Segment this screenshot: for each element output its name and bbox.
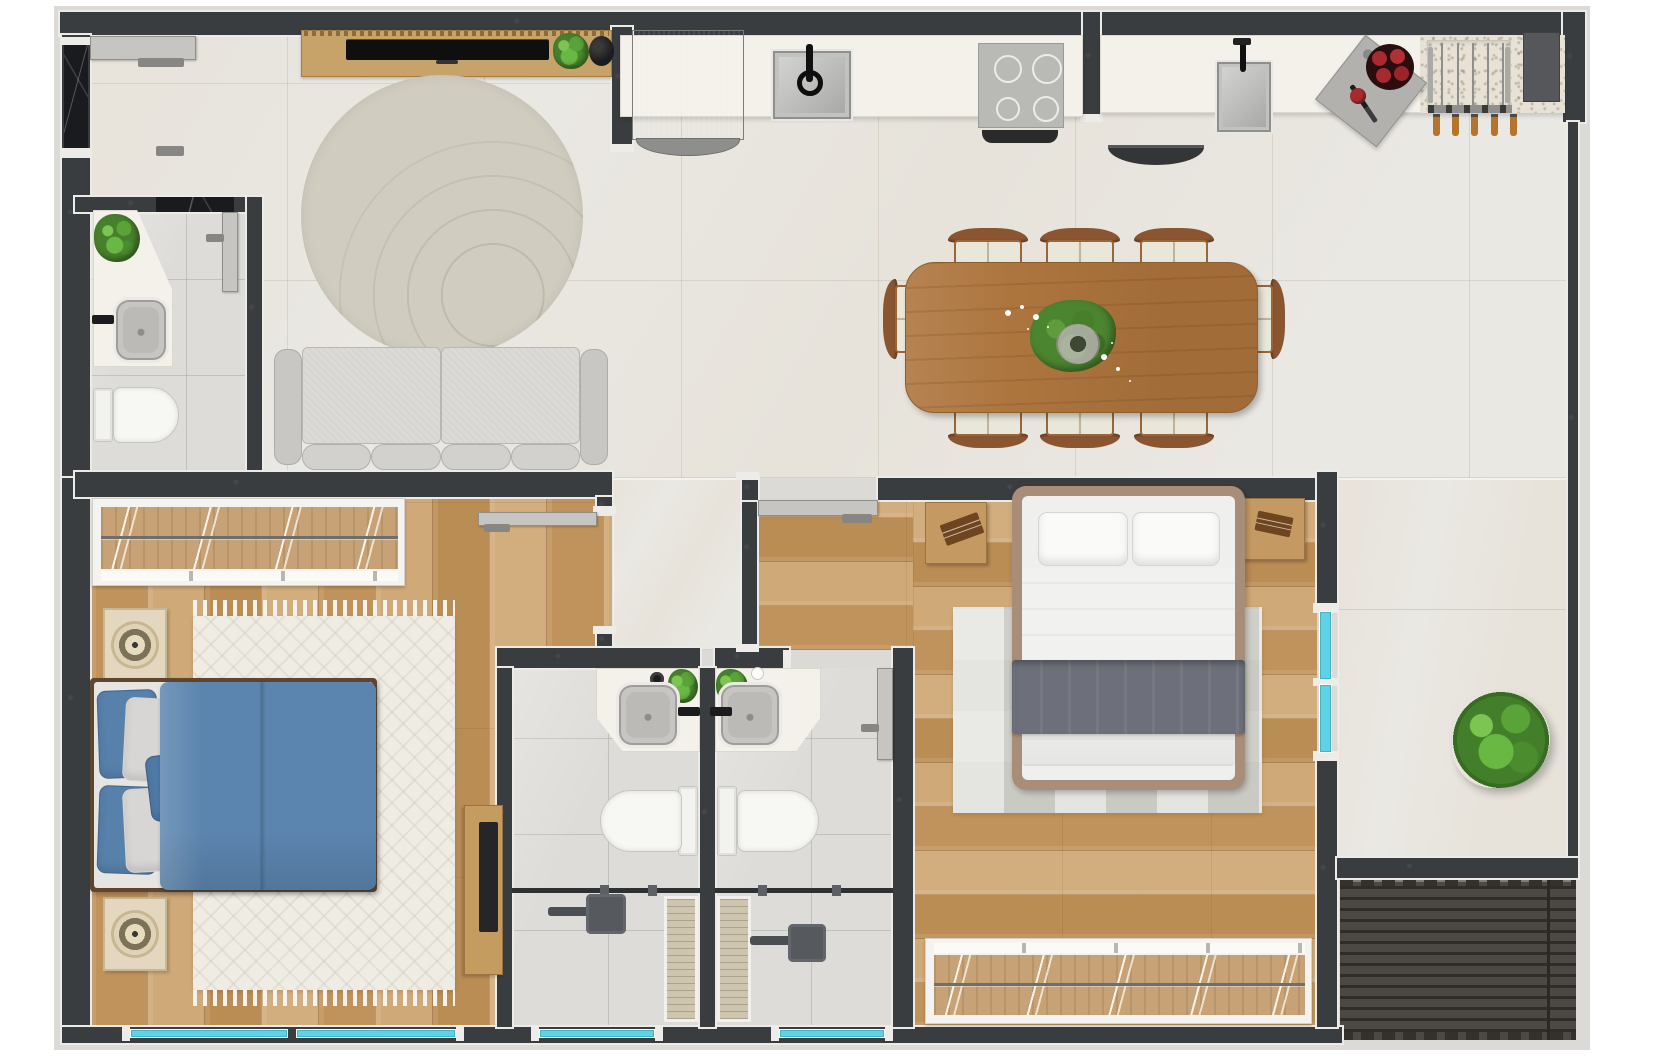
bathroom2-accessory [751, 667, 764, 680]
sofa-seat-cushion [302, 347, 441, 444]
powder-door-handle [206, 234, 224, 242]
powder-sink [113, 297, 169, 363]
terrace-floor [1337, 478, 1570, 860]
utensil-handle [1491, 114, 1498, 136]
master-pillow [1038, 512, 1128, 566]
grill-rod [1441, 43, 1443, 105]
wall-kitchen-pillar [1083, 12, 1100, 120]
wall-terrace-right [1568, 122, 1578, 860]
master-window-pane [1319, 611, 1332, 680]
tomato-bowl [1366, 44, 1414, 90]
console-plant [553, 33, 589, 69]
tomato [1390, 49, 1405, 64]
window-jamb [771, 1027, 779, 1041]
grill-bottom-bar [1428, 105, 1512, 113]
sofa [274, 345, 608, 470]
prep-faucet-base [1233, 38, 1251, 45]
deck-teeth-bottom [1340, 1032, 1576, 1040]
tomato-single [1350, 88, 1366, 104]
bathroom2-door-handle [861, 724, 879, 732]
tomato [1372, 51, 1387, 66]
wall-powder-right [247, 197, 262, 472]
window-jamb [456, 1027, 464, 1041]
rug-tassels [193, 600, 455, 616]
grill-rail [1505, 47, 1510, 103]
sofa-seat-cushion [441, 347, 580, 444]
nightstand-lamp [111, 621, 159, 669]
tv-stand [436, 60, 458, 64]
sofa-armrest [580, 349, 608, 465]
nightstand-lamp [111, 910, 159, 958]
powder-plant [94, 214, 140, 262]
rug-tassels [193, 990, 455, 1006]
utensil-handle [1433, 114, 1440, 136]
master-vestibule-floor [757, 500, 913, 650]
deck-floor [1340, 878, 1576, 1040]
sofa-armrest [274, 349, 302, 465]
bathroom2-shower-head [788, 924, 826, 962]
burner [994, 55, 1022, 83]
sofa-back-cushion [511, 444, 580, 470]
wall-bathroom2-right [893, 648, 913, 1027]
grill-rod [1487, 43, 1489, 105]
wall-master-left [742, 478, 757, 650]
grill-rail [1428, 47, 1433, 103]
window-jamb [122, 1027, 130, 1041]
wardrobe-front-edge [934, 943, 1305, 953]
bathroom1-shower-arm [548, 907, 590, 916]
wall-cap [1080, 114, 1103, 122]
tomato [1376, 68, 1391, 83]
powder-toilet-tank [93, 388, 113, 442]
wall-bedroom1-top [75, 472, 612, 497]
bedroom1-wardrobe [92, 498, 405, 586]
decor-bowl [589, 36, 614, 66]
wall-master-right-lower [1317, 761, 1337, 1027]
grill-rod [1502, 43, 1504, 105]
bedroom1-door-handle [484, 524, 510, 532]
bedroom1-bed [90, 678, 377, 892]
refrigerator [632, 30, 744, 140]
grill-rod [1472, 43, 1474, 105]
bathroom1-shower-head [586, 894, 626, 934]
tomato [1394, 66, 1409, 81]
wall-top [60, 12, 1583, 35]
grill-rod [1457, 43, 1459, 105]
sink-basin [1222, 67, 1266, 127]
wall-bathrooms-shared [700, 668, 715, 1027]
deck-seam [1547, 878, 1550, 1040]
wall-master-right-upper [1317, 472, 1337, 605]
floor-plan-canvas [0, 0, 1665, 1063]
window-jamb [531, 1027, 539, 1041]
cooktop-vent [982, 130, 1058, 143]
kitchen-dark-panel [1523, 32, 1560, 102]
wall-cap [62, 37, 90, 45]
bathroom2-faucet [710, 707, 732, 716]
sofa-back-cushion [302, 444, 371, 470]
prep-faucet [1240, 42, 1246, 72]
bathroom2-linear-drain [717, 896, 751, 1022]
sofa-back-cushion [441, 444, 511, 470]
powder-door-leaf [222, 212, 238, 292]
tv [346, 39, 549, 60]
door-jamb [593, 626, 616, 634]
laptop [479, 822, 498, 932]
wall-bathroom1-top [497, 648, 700, 668]
bathroom1-window-pane [539, 1029, 655, 1038]
bathroom1-toilet-bowl [600, 790, 682, 852]
master-door-handle [842, 514, 872, 523]
powder-toilet-bowl [113, 387, 179, 443]
entry-marble-niche [64, 45, 88, 148]
entry-door-handle [156, 146, 184, 156]
glass-clamp [758, 885, 767, 896]
glass-clamp [832, 885, 841, 896]
entry-door-handle [138, 58, 184, 67]
cooktop [978, 43, 1064, 128]
grill-rack [1427, 40, 1511, 112]
bedroom1-window-pane [130, 1029, 288, 1038]
burner [996, 97, 1020, 121]
duvet-blue [160, 682, 376, 890]
deck-teeth-top [1340, 878, 1576, 886]
master-wardrobe [925, 938, 1312, 1024]
wall-cap [62, 148, 90, 158]
bathroom1-faucet [678, 707, 700, 716]
powder-faucet [92, 315, 114, 324]
kitchen-faucet-ring [797, 70, 823, 96]
master-bed [1012, 486, 1245, 790]
round-rug [301, 75, 583, 357]
wardrobe-front-edge [101, 571, 398, 581]
bathroom2-window-pane [779, 1029, 885, 1038]
wardrobe-rail [101, 536, 398, 539]
utensil-handle [1510, 114, 1517, 136]
hallway-floor [612, 478, 742, 650]
door-jamb [736, 472, 759, 480]
bathroom1-linear-drain [664, 896, 698, 1022]
master-throw-blanket [1012, 660, 1245, 734]
centerpiece-pot [1056, 324, 1100, 364]
burner [1032, 54, 1062, 84]
master-window-pane [1319, 684, 1332, 753]
bedroom1-window-pane [296, 1029, 456, 1038]
window-jamb [655, 1027, 663, 1041]
door-jamb [736, 644, 759, 652]
powder-door-lintel [156, 197, 234, 212]
bathroom1-sink [616, 682, 680, 748]
bathroom2-shower-arm [750, 936, 792, 945]
wall-left-lower [62, 478, 90, 1027]
sofa-back-cushion [371, 444, 441, 470]
bathroom2-toilet-bowl [737, 790, 819, 852]
bathroom2-door-leaf [877, 668, 893, 760]
flower-sprigs [1005, 310, 1011, 316]
wall-terrace-border [1337, 858, 1578, 878]
wall-master-top-left [742, 478, 758, 500]
bathroom2-toilet-tank [717, 786, 737, 856]
master-pillow [1132, 512, 1220, 566]
wall-cap [610, 144, 634, 152]
window-jamb [885, 1027, 893, 1041]
wardrobe-rail [934, 983, 1305, 986]
door-jamb [783, 650, 791, 668]
burner [1033, 96, 1059, 122]
utensil-handle [1452, 114, 1459, 136]
glass-clamp [648, 885, 657, 896]
wall-corner-top-right [1563, 12, 1585, 122]
entry-door-leaf [90, 36, 196, 60]
bathroom2-shower-glass [715, 888, 893, 893]
utensil-handle [1471, 114, 1478, 136]
